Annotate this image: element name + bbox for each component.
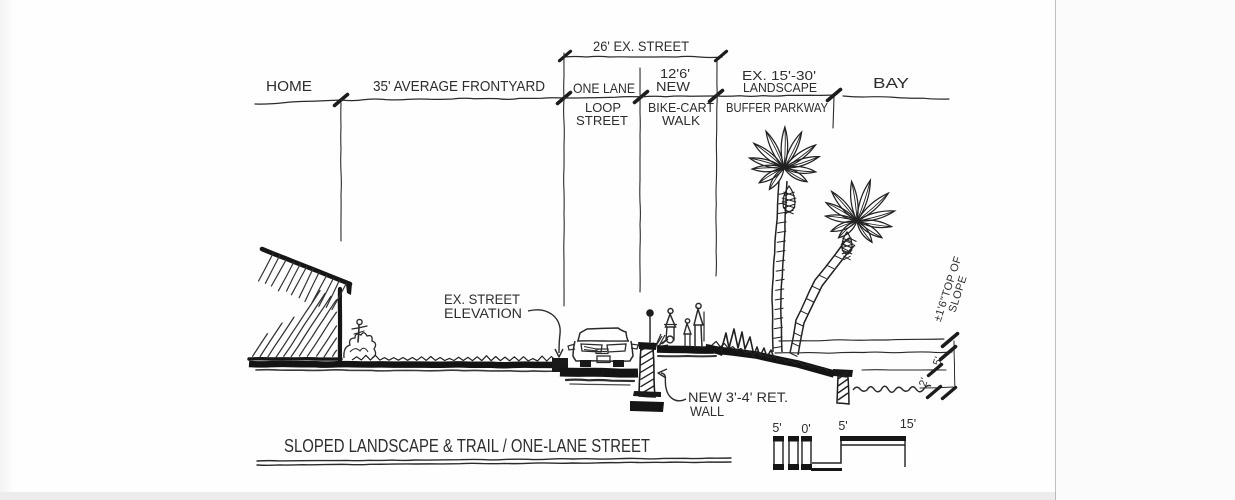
svg-text:ONE LANE: ONE LANE bbox=[573, 80, 635, 96]
svg-text:SLOPED LANDSCAPE & TRAIL / ON: SLOPED LANDSCAPE & TRAIL / ONE-LANE STRE… bbox=[284, 435, 650, 456]
svg-text:WALK: WALK bbox=[662, 113, 700, 128]
svg-text:35' AVERAGE FRONTYARD: 35' AVERAGE FRONTYARD bbox=[373, 79, 545, 95]
svg-text:26' EX. STREET: 26' EX. STREET bbox=[593, 39, 689, 54]
svg-text:EX. STREET: EX. STREET bbox=[444, 292, 520, 307]
svg-text:NEW: NEW bbox=[656, 79, 691, 94]
svg-text:BAY: BAY bbox=[873, 75, 909, 92]
svg-text:LANDSCAPE: LANDSCAPE bbox=[743, 80, 817, 95]
svg-text:15': 15' bbox=[900, 417, 916, 431]
svg-text:WALL: WALL bbox=[690, 404, 724, 419]
svg-text:5': 5' bbox=[772, 421, 781, 435]
svg-text:0': 0' bbox=[801, 422, 810, 436]
svg-text:STREET: STREET bbox=[576, 113, 628, 128]
svg-text:HOME: HOME bbox=[266, 78, 312, 95]
svg-text:5': 5' bbox=[838, 419, 847, 433]
svg-text:NEW 3'-4' RET.: NEW 3'-4' RET. bbox=[688, 390, 788, 405]
svg-text:BUFFER PARKWAY: BUFFER PARKWAY bbox=[726, 100, 828, 115]
svg-text:ELEVATION: ELEVATION bbox=[444, 306, 522, 321]
